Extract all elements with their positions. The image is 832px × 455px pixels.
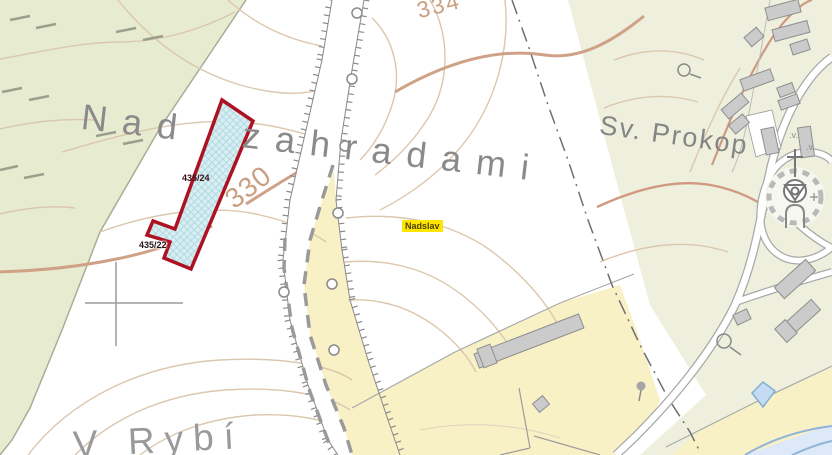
selected-parcel-435-24[interactable] <box>147 100 253 269</box>
svg-text:.v.: .v. <box>789 130 798 140</box>
survey-cross-icon <box>85 262 183 346</box>
svg-text:.v.: .v. <box>806 142 815 152</box>
map-art: .v. .v. <box>0 0 832 455</box>
field-bottom-yellow <box>352 285 660 455</box>
map-canvas[interactable]: .v. .v. Nad zahradami Sv. Prokop V Rybí … <box>0 0 832 455</box>
region-fills <box>0 0 832 455</box>
